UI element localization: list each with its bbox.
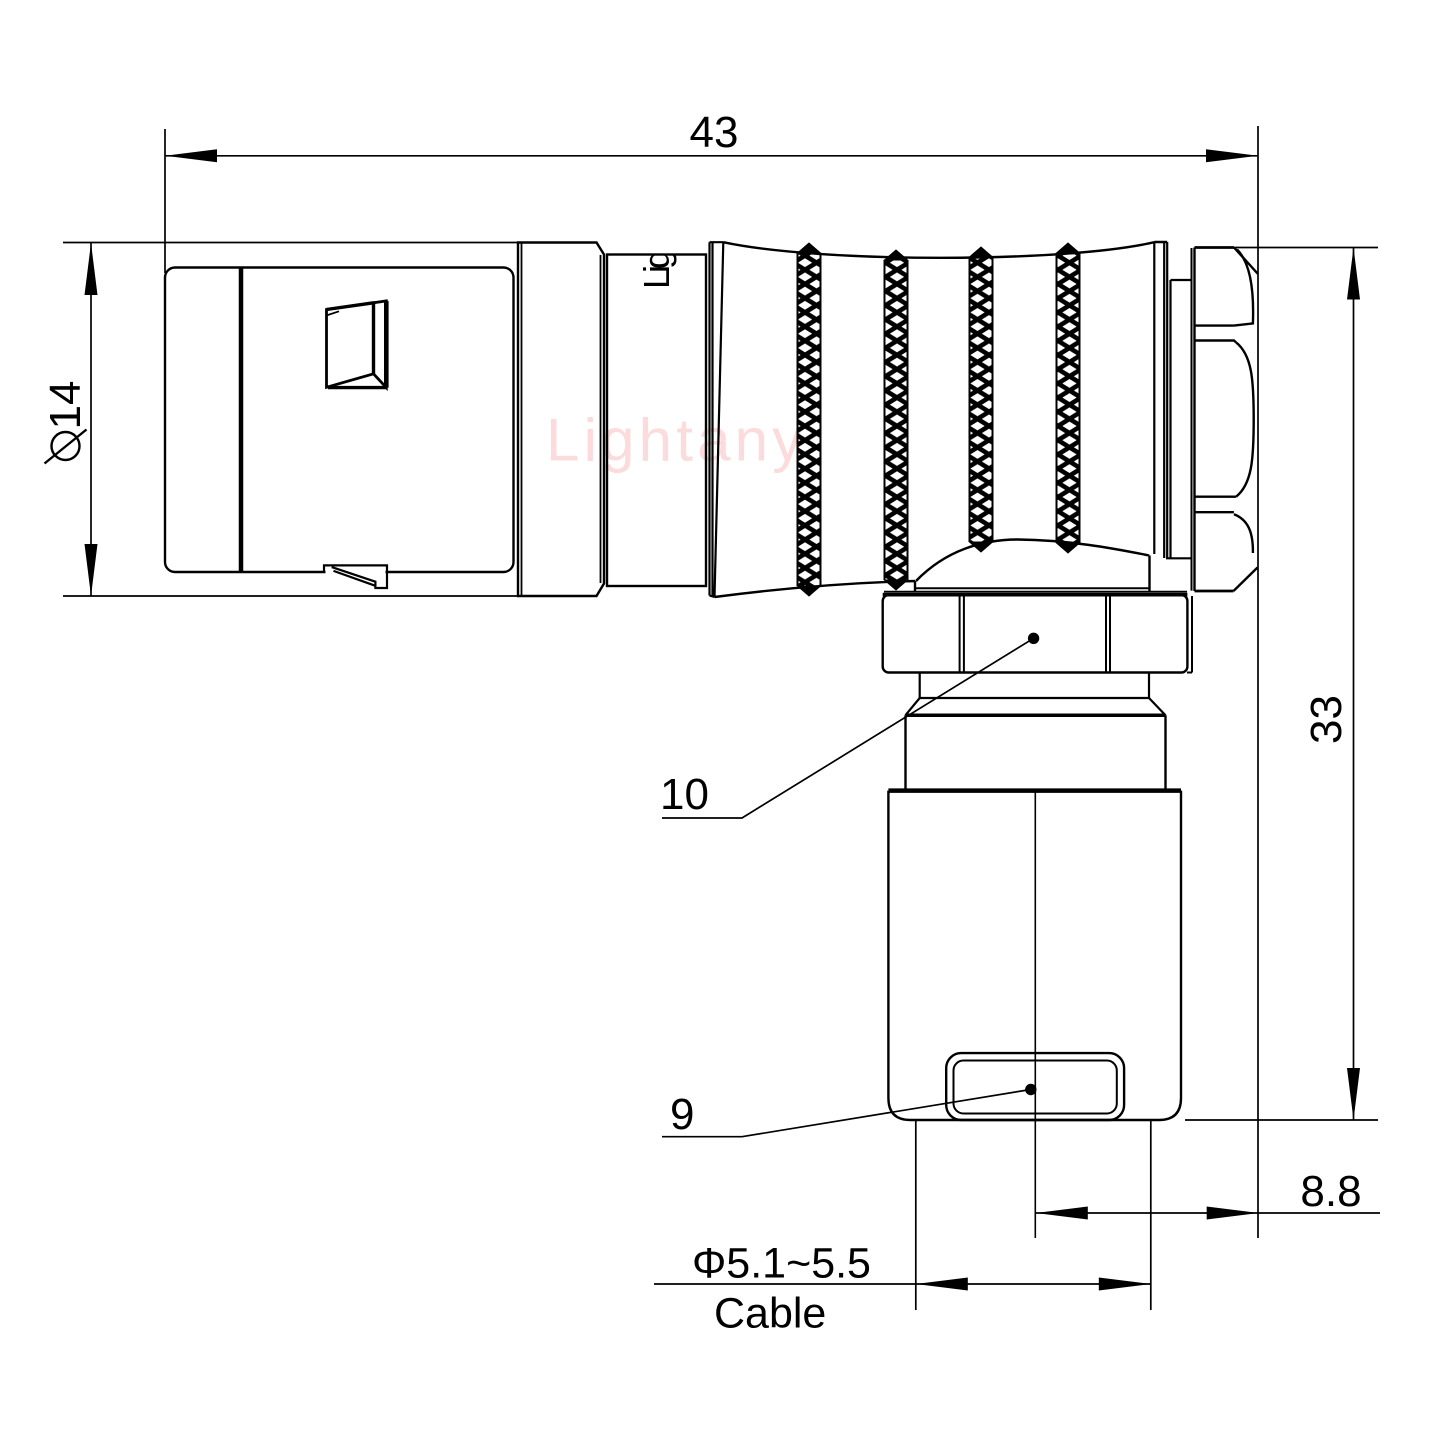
svg-text:10: 10 (660, 770, 709, 819)
svg-text:9: 9 (670, 1090, 694, 1139)
svg-text:14: 14 (41, 381, 90, 430)
svg-text:8.8: 8.8 (1300, 1167, 1361, 1216)
svg-text:43: 43 (690, 108, 739, 157)
svg-text:Cable: Cable (714, 1290, 826, 1338)
svg-text:Lig: Lig (636, 251, 677, 289)
svg-text:Lightany: Lightany (546, 407, 806, 474)
svg-text:33: 33 (1302, 695, 1351, 744)
svg-text:Φ5.1~5.5: Φ5.1~5.5 (692, 1240, 871, 1288)
